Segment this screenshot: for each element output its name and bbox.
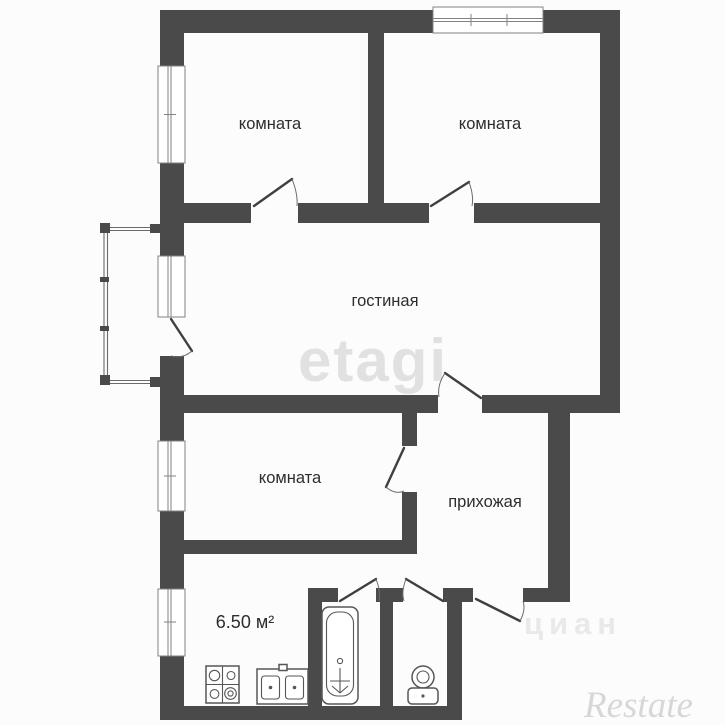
double-sink-icon xyxy=(257,665,308,705)
window-top-right-room xyxy=(433,7,543,33)
label-kitchen-area: 6.50 м² xyxy=(216,612,274,632)
balcony-post xyxy=(100,277,109,282)
door-opening xyxy=(429,202,474,224)
wall-bottomroom-hallway-lower xyxy=(402,492,417,540)
window-top-left-room xyxy=(158,66,185,163)
door-opening xyxy=(401,446,418,492)
wall-top-rooms-living xyxy=(160,203,620,223)
stove-icon xyxy=(206,666,239,703)
toilet-icon xyxy=(408,666,438,704)
balcony xyxy=(100,223,160,387)
floor-plan-drawing: etagi циан Restate xyxy=(0,0,725,725)
watermark-cian: циан xyxy=(524,606,622,641)
floor-plan-image: etagi циан Restate xyxy=(0,0,725,725)
wall-bathroom-right xyxy=(380,602,393,706)
label-room-bottom: комната xyxy=(259,469,322,487)
watermark-etagi: etagi xyxy=(298,327,448,394)
wall-living-bottom-right xyxy=(482,395,620,413)
balcony-post xyxy=(100,223,110,233)
wall-hallway-right xyxy=(548,413,570,602)
balcony-anchor xyxy=(150,224,160,233)
wall-between-top-rooms xyxy=(368,33,384,203)
window-kitchen xyxy=(158,589,185,656)
door-bathroom xyxy=(340,579,380,601)
wall-top-outer xyxy=(160,10,620,33)
wall-bottomroom-bottom xyxy=(160,540,417,554)
watermark-restate: Restate xyxy=(583,685,693,725)
balcony-post xyxy=(100,326,109,331)
wall-right-outer xyxy=(600,33,620,413)
wall-band-segment xyxy=(443,588,473,602)
label-room-top-right: комната xyxy=(459,115,522,133)
bathtub-icon xyxy=(322,607,358,704)
door-opening xyxy=(251,202,298,224)
label-hallway: прихожая xyxy=(448,493,522,511)
wall-toilet-right xyxy=(447,602,462,720)
label-room-top-left: комната xyxy=(239,115,302,133)
wall-living-bottom-left xyxy=(160,395,438,413)
door-toilet xyxy=(403,579,443,601)
label-living-room: гостиная xyxy=(351,292,418,310)
window-living-room xyxy=(158,256,185,317)
wall-bathroom-left xyxy=(308,602,322,720)
wall-band-segment xyxy=(308,588,338,602)
wall-bottom-outer xyxy=(160,706,462,720)
balcony-post xyxy=(100,375,110,385)
wall-bottomroom-hallway-upper xyxy=(402,413,417,446)
window-bottom-room xyxy=(158,441,185,511)
door-entrance xyxy=(476,599,524,621)
wall-band-segment xyxy=(523,588,570,602)
balcony-anchor xyxy=(150,377,160,387)
door-top-left-room xyxy=(254,179,297,206)
